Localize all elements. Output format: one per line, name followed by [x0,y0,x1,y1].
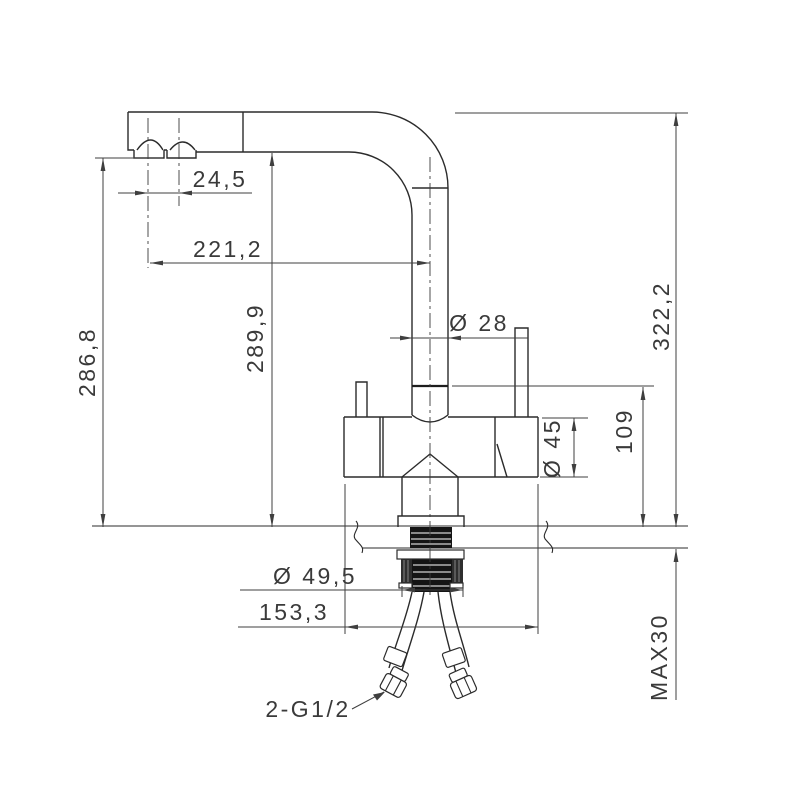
centerlines [148,118,430,597]
dim-body-diameter: Ø 45 [539,418,565,478]
nut-notch-right [450,583,463,588]
dimension-labels: 24,5 221,2 286,8 289,9 322,2 Ø 28 Ø 45 1… [74,166,674,722]
dim-body-top-to-deck: 109 [611,408,637,454]
faucet-technical-drawing: 24,5 221,2 286,8 289,9 322,2 Ø 28 Ø 45 1… [0,0,800,800]
hose-fitting-left [379,665,412,699]
hose-collar-left [383,646,407,667]
hose-fitting-right [446,666,478,699]
lever-left [356,382,367,417]
dim-body-length: 153,3 [259,599,329,625]
hose-collar-right [442,647,466,668]
dim-max-deck-thickness: MAX30 [646,613,672,701]
dim-nozzle-spacing: 24,5 [193,166,248,192]
dimension-arrowheads [101,113,679,701]
threaded-shank [397,527,464,592]
dim-height-under-spout: 289,9 [242,303,268,373]
supply-hoses [379,592,477,699]
aerator-nozzle-main [137,140,163,150]
faucet-body [344,417,538,477]
mounting-washer [397,550,464,559]
dimension-lines [95,113,688,709]
drawing-canvas: 24,5 221,2 286,8 289,9 322,2 Ø 28 Ø 45 1… [0,0,800,800]
aerator-nozzle-filtered [170,142,195,150]
counter-section [92,521,688,553]
nut-notch-left [399,583,412,588]
dim-total-height: 322,2 [648,281,674,351]
lever-right [515,328,528,417]
dim-height-to-aerator: 286,8 [74,327,100,397]
base-flange [398,516,464,527]
dim-spout-reach: 221,2 [193,236,263,262]
dim-hose-thread: 2-G1/2 [265,696,350,722]
dim-mounting-diameter: Ø 49,5 [273,563,357,589]
dim-spout-pipe-diameter: Ø 28 [449,310,509,336]
